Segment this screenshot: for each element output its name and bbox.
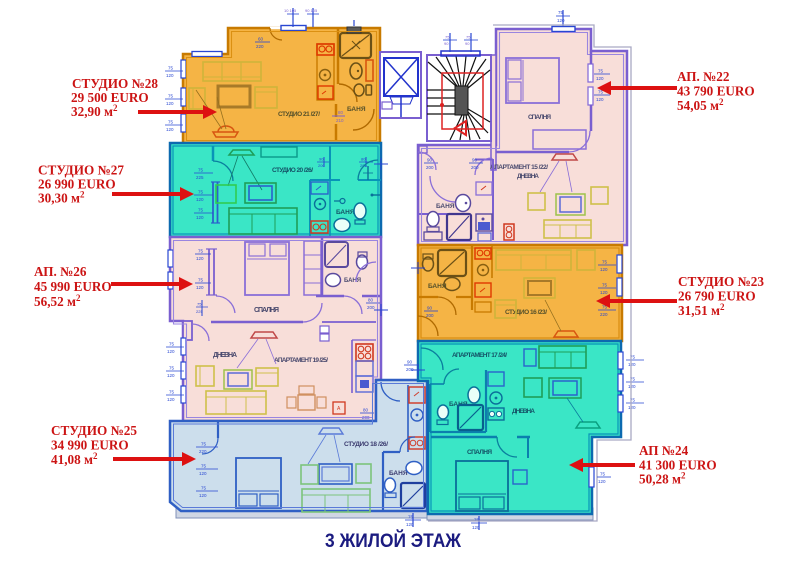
svg-text:75: 75 bbox=[198, 168, 204, 173]
svg-text:120: 120 bbox=[196, 215, 204, 220]
svg-text:120: 120 bbox=[199, 493, 207, 498]
svg-text:СТУДИО №23: СТУДИО №23 bbox=[678, 274, 764, 289]
svg-text:26 990 EURO: 26 990 EURO bbox=[38, 177, 116, 192]
svg-text:120: 120 bbox=[199, 471, 207, 476]
svg-text:ДНЕВНА: ДНЕВНА bbox=[213, 352, 237, 359]
svg-text:СПАЛНЯ: СПАЛНЯ bbox=[467, 449, 492, 456]
svg-text:75: 75 bbox=[558, 10, 564, 15]
svg-text:210: 210 bbox=[336, 118, 344, 123]
svg-text:220: 220 bbox=[199, 449, 207, 454]
svg-text:120: 120 bbox=[628, 384, 636, 389]
svg-text:АПАРТАМЕНТ 15 /22/: АПАРТАМЕНТ 15 /22/ bbox=[490, 164, 548, 171]
svg-text:75: 75 bbox=[198, 190, 204, 195]
svg-text:10 105: 10 105 bbox=[284, 8, 297, 13]
svg-text:32,90 м2: 32,90 м2 bbox=[71, 103, 118, 119]
svg-text:120: 120 bbox=[628, 405, 636, 410]
svg-text:АП №24: АП №24 bbox=[639, 443, 689, 458]
svg-text:120: 120 bbox=[600, 290, 608, 295]
svg-text:31,51 м2: 31,51 м2 bbox=[678, 302, 725, 318]
svg-text:200: 200 bbox=[426, 165, 434, 170]
svg-text:СТУДИО 16 /23/: СТУДИО 16 /23/ bbox=[505, 309, 547, 316]
svg-text:45 990 EURO: 45 990 EURO bbox=[34, 279, 112, 294]
svg-text:90: 90 bbox=[407, 360, 413, 365]
svg-text:120: 120 bbox=[196, 285, 204, 290]
svg-text:90: 90 bbox=[319, 157, 324, 162]
svg-text:75: 75 bbox=[198, 278, 204, 283]
svg-text:СТУДИО 18 /26/: СТУДИО 18 /26/ bbox=[344, 441, 388, 448]
svg-text:75: 75 bbox=[198, 208, 204, 213]
svg-text:БАНЯ: БАНЯ bbox=[347, 106, 366, 113]
svg-text:75: 75 bbox=[168, 66, 174, 71]
svg-text:ДНЕВНА: ДНЕВНА bbox=[517, 173, 539, 180]
svg-text:26 790 EURO: 26 790 EURO bbox=[678, 289, 756, 304]
svg-text:75: 75 bbox=[201, 464, 207, 469]
svg-text:СТУДИО №25: СТУДИО №25 bbox=[51, 423, 137, 438]
svg-text:41,08 м2: 41,08 м2 bbox=[51, 451, 98, 467]
svg-text:60: 60 bbox=[258, 37, 264, 42]
svg-text:200: 200 bbox=[367, 305, 375, 310]
svg-text:120: 120 bbox=[596, 97, 604, 102]
svg-text:200: 200 bbox=[318, 163, 325, 168]
svg-text:120: 120 bbox=[472, 525, 480, 530]
svg-text:ДНЕВНА: ДНЕВНА bbox=[512, 408, 535, 415]
svg-text:120: 120 bbox=[166, 101, 174, 106]
svg-text:120: 120 bbox=[167, 349, 175, 354]
svg-text:225: 225 bbox=[196, 175, 204, 180]
svg-text:АП. №22: АП. №22 bbox=[677, 69, 730, 84]
svg-text:3 ЖИЛОЙ ЭТАЖ: 3 ЖИЛОЙ ЭТАЖ bbox=[325, 530, 462, 552]
svg-text:200: 200 bbox=[426, 313, 434, 318]
svg-text:75: 75 bbox=[408, 515, 414, 520]
svg-text:90: 90 bbox=[427, 306, 433, 311]
svg-text:120: 120 bbox=[406, 522, 414, 527]
svg-text:80: 80 bbox=[368, 298, 374, 303]
svg-text:75: 75 bbox=[198, 249, 204, 254]
svg-text:54,05 м2: 54,05 м2 bbox=[677, 97, 724, 113]
svg-text:БАНЯ: БАНЯ bbox=[389, 470, 408, 477]
svg-text:СТУДИО 20 /26/: СТУДИО 20 /26/ bbox=[272, 167, 313, 174]
svg-text:СТУДИО №28: СТУДИО №28 bbox=[72, 76, 158, 91]
svg-text:120: 120 bbox=[557, 18, 565, 23]
svg-text:80: 80 bbox=[363, 408, 369, 413]
svg-text:50,28 м2: 50,28 м2 bbox=[639, 471, 686, 487]
svg-text:75: 75 bbox=[598, 69, 604, 74]
svg-text:90: 90 bbox=[444, 41, 449, 46]
svg-text:120: 120 bbox=[166, 73, 174, 78]
svg-text:75: 75 bbox=[474, 518, 480, 523]
svg-text:80: 80 bbox=[338, 110, 344, 115]
svg-text:120: 120 bbox=[167, 397, 175, 402]
svg-text:220: 220 bbox=[600, 312, 608, 317]
svg-text:90: 90 bbox=[465, 41, 470, 46]
svg-text:БАНЯ: БАНЯ bbox=[436, 203, 455, 210]
svg-text:75: 75 bbox=[168, 120, 174, 125]
svg-text:75: 75 bbox=[168, 94, 174, 99]
svg-text:41 300 EURO: 41 300 EURO bbox=[639, 458, 717, 473]
svg-text:120: 120 bbox=[600, 267, 608, 272]
svg-text:29 500 EURO: 29 500 EURO bbox=[71, 90, 149, 105]
svg-text:75: 75 bbox=[602, 283, 608, 288]
svg-text:75: 75 bbox=[197, 302, 202, 307]
svg-text:90 105: 90 105 bbox=[305, 8, 318, 13]
svg-text:75: 75 bbox=[169, 390, 175, 395]
svg-text:43 790 EURO: 43 790 EURO bbox=[677, 84, 755, 99]
svg-text:80: 80 bbox=[361, 157, 366, 162]
svg-text:34 990 EURO: 34 990 EURO bbox=[51, 438, 129, 453]
svg-text:200: 200 bbox=[471, 165, 479, 170]
svg-text:225: 225 bbox=[196, 309, 203, 314]
svg-text:120: 120 bbox=[598, 479, 606, 484]
svg-text:75: 75 bbox=[169, 342, 175, 347]
svg-text:75: 75 bbox=[466, 35, 471, 40]
svg-text:БАНЯ: БАНЯ bbox=[344, 278, 361, 284]
svg-text:БАНЯ: БАНЯ bbox=[428, 283, 447, 290]
svg-text:75: 75 bbox=[169, 366, 175, 371]
svg-text:120: 120 bbox=[628, 362, 636, 367]
svg-text:30,30 м2: 30,30 м2 bbox=[38, 190, 85, 206]
svg-text:75: 75 bbox=[445, 35, 450, 40]
svg-text:120: 120 bbox=[167, 373, 175, 378]
svg-text:СТУДИО 21 /27/: СТУДИО 21 /27/ bbox=[278, 111, 320, 118]
svg-text:120: 120 bbox=[166, 127, 174, 132]
svg-text:75: 75 bbox=[201, 442, 207, 447]
svg-text:СПАЛНЯ: СПАЛНЯ bbox=[528, 114, 551, 121]
svg-text:АПАРТАМЕНТ 17 /24/: АПАРТАМЕНТ 17 /24/ bbox=[452, 352, 507, 359]
svg-text:75: 75 bbox=[600, 472, 606, 477]
svg-text:220: 220 bbox=[256, 44, 264, 49]
svg-text:СТУДИО №27: СТУДИО №27 bbox=[38, 163, 124, 178]
svg-text:90: 90 bbox=[472, 158, 478, 163]
svg-text:АПАРТАМЕНТ 19 /25/: АПАРТАМЕНТ 19 /25/ bbox=[274, 357, 328, 364]
svg-text:120: 120 bbox=[196, 197, 204, 202]
svg-text:75: 75 bbox=[602, 260, 608, 265]
svg-text:56,52 м2: 56,52 м2 bbox=[34, 293, 81, 309]
svg-text:АП. №26: АП. №26 bbox=[34, 264, 87, 279]
svg-text:75: 75 bbox=[201, 486, 207, 491]
svg-text:120: 120 bbox=[196, 256, 204, 261]
svg-text:120: 120 bbox=[596, 76, 604, 81]
svg-text:СПАЛНЯ: СПАЛНЯ bbox=[254, 307, 279, 314]
svg-text:БАНЯ: БАНЯ bbox=[336, 209, 355, 216]
